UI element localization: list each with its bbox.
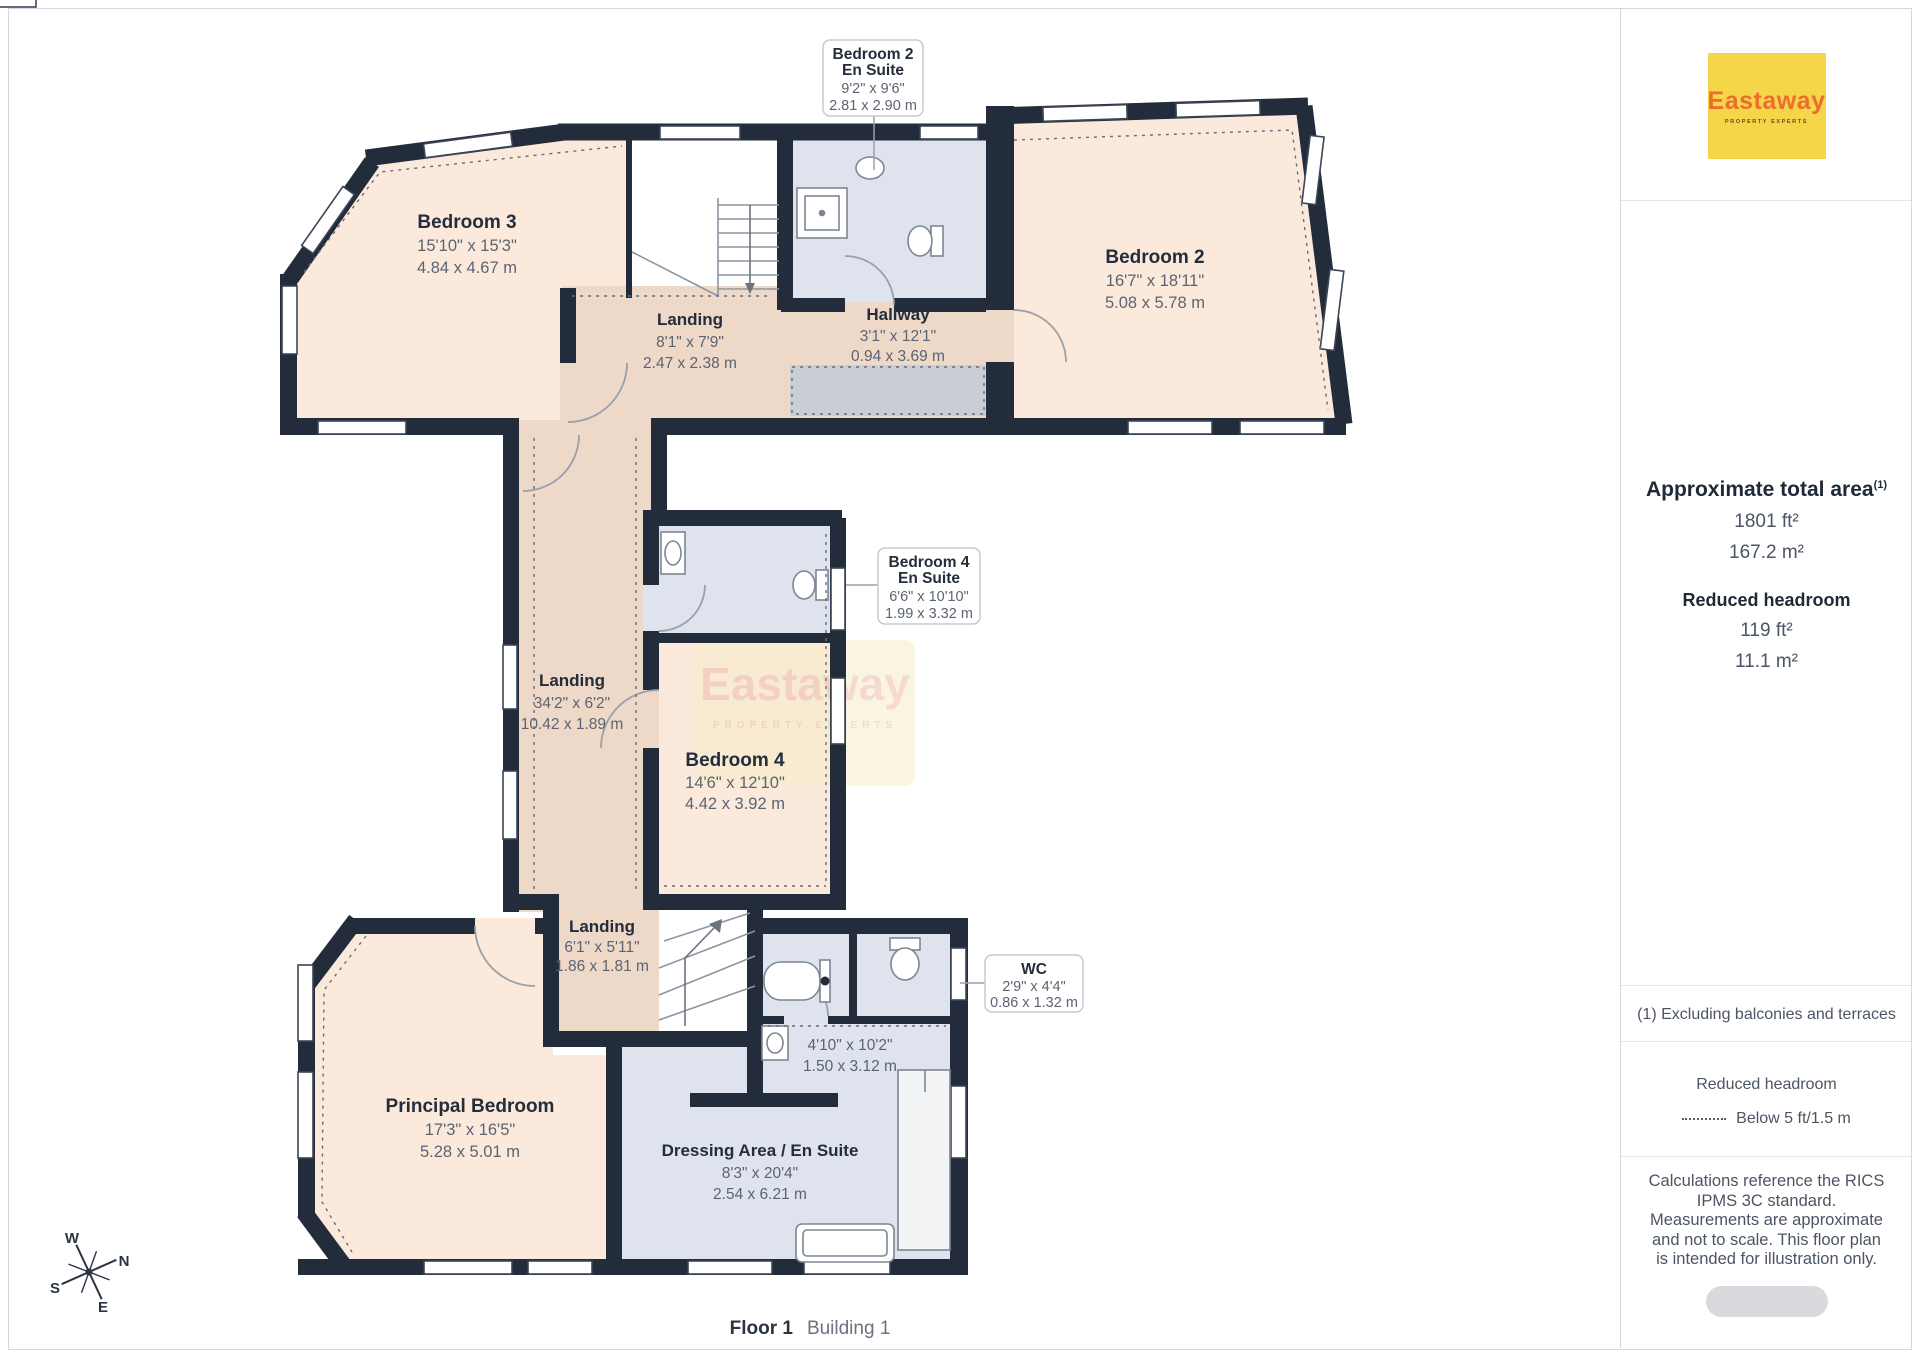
floor-label: Floor 1 <box>730 1318 793 1339</box>
svg-text:E: E <box>98 1299 108 1316</box>
agency-tagline: PROPERTY EXPERTS <box>1725 119 1808 125</box>
svg-text:3'1" x 12'1": 3'1" x 12'1" <box>860 328 936 345</box>
total-area-title: Approximate total area(1) <box>1621 478 1912 502</box>
callout-wc: WC 2'9" x 4'4" 0.86 x 1.32 m <box>960 955 1083 1012</box>
room-label-bedroom-4: Bedroom 4 14'6" x 12'10" 4.42 x 3.92 m <box>685 750 785 813</box>
svg-text:Principal Bedroom: Principal Bedroom <box>386 1096 555 1117</box>
svg-text:6'1" x 5'11": 6'1" x 5'11" <box>564 939 639 956</box>
svg-text:S: S <box>50 1280 60 1297</box>
reduced-headroom-ft: 119 ft² <box>1621 620 1912 642</box>
total-area-block: Approximate total area(1) 1801 ft² 167.2… <box>1621 478 1912 673</box>
svg-text:1.86 x 1.81 m: 1.86 x 1.81 m <box>555 958 649 975</box>
svg-text:2.54 x 6.21 m: 2.54 x 6.21 m <box>713 1186 807 1203</box>
floorplan-page: Eastaway PROPERTY EXPERTS <box>0 0 1920 1358</box>
legend-row: Below 5 ft/1.5 m <box>1621 1110 1912 1128</box>
divider <box>1621 200 1912 201</box>
disclaimer-text: Calculations reference the RICS IPMS 3C … <box>1647 1172 1886 1270</box>
svg-text:8'3" x 20'4": 8'3" x 20'4" <box>722 1165 798 1182</box>
room-label-bedroom-2: Bedroom 2 16'7" x 18'11" 5.08 x 5.78 m <box>1105 247 1205 312</box>
room-label-bedroom-3: Bedroom 3 15'10" x 15'3" 4.84 x 4.67 m <box>417 212 517 277</box>
reduced-headroom-m: 11.1 m² <box>1621 651 1912 673</box>
building-label: Building 1 <box>807 1318 890 1339</box>
svg-text:0.86 x 1.32 m: 0.86 x 1.32 m <box>990 995 1078 1011</box>
svg-text:1.50 x 3.12 m: 1.50 x 3.12 m <box>803 1058 897 1075</box>
svg-text:4.42 x 3.92 m: 4.42 x 3.92 m <box>685 795 785 813</box>
svg-text:1.99 x 3.32 m: 1.99 x 3.32 m <box>885 606 973 622</box>
svg-text:WC: WC <box>1021 961 1047 978</box>
agency-brand: Eastaway <box>1708 87 1826 116</box>
svg-text:15'10" x 15'3": 15'10" x 15'3" <box>417 237 517 255</box>
divider <box>1621 1156 1912 1157</box>
svg-text:10.42 x 1.89 m: 10.42 x 1.89 m <box>521 716 624 733</box>
callout-bedroom4-ensuite: Bedroom 4 En Suite 6'6" x 10'10" 1.99 x … <box>846 548 980 624</box>
divider <box>1621 985 1912 986</box>
svg-text:16'7" x 18'11": 16'7" x 18'11" <box>1106 272 1205 290</box>
svg-text:2.81 x 2.90 m: 2.81 x 2.90 m <box>829 98 917 114</box>
compass-icon: W N S E <box>50 1230 129 1316</box>
svg-text:Bedroom 4: Bedroom 4 <box>685 750 785 771</box>
total-area-m: 167.2 m² <box>1621 542 1912 564</box>
svg-text:Landing: Landing <box>539 671 605 690</box>
bath-icon <box>764 962 820 1000</box>
total-area-ft: 1801 ft² <box>1621 511 1912 533</box>
svg-text:Landing: Landing <box>657 310 723 329</box>
footnote-marker: (1) <box>1874 479 1887 491</box>
svg-text:Hallway: Hallway <box>866 305 930 324</box>
svg-text:Landing: Landing <box>569 917 635 936</box>
floor-caption: Floor 1Building 1 <box>0 1318 1620 1340</box>
svg-text:8'1" x 7'9": 8'1" x 7'9" <box>656 334 724 351</box>
svg-text:Dressing Area / En Suite: Dressing Area / En Suite <box>662 1141 859 1160</box>
watermark-brand: Eastaway <box>700 658 910 710</box>
svg-text:Bedroom 3: Bedroom 3 <box>417 212 516 233</box>
svg-text:N: N <box>119 1253 130 1270</box>
svg-text:6'6" x 10'10": 6'6" x 10'10" <box>889 589 969 605</box>
blurred-badge <box>1706 1286 1828 1317</box>
svg-text:5.28 x 5.01 m: 5.28 x 5.01 m <box>420 1143 520 1161</box>
svg-text:Bedroom 2: Bedroom 2 <box>833 46 914 63</box>
info-sidebar: Eastaway PROPERTY EXPERTS Approximate to… <box>1620 8 1912 1348</box>
legend-label: Below 5 ft/1.5 m <box>1736 1110 1851 1127</box>
legend-title: Reduced headroom <box>1621 1076 1912 1094</box>
svg-text:34'2" x 6'2": 34'2" x 6'2" <box>534 695 610 712</box>
svg-text:4.84 x 4.67 m: 4.84 x 4.67 m <box>417 259 517 277</box>
legend-block: Reduced headroom Below 5 ft/1.5 m <box>1621 1076 1912 1128</box>
agency-logo: Eastaway PROPERTY EXPERTS <box>1708 53 1826 159</box>
dotted-line-icon <box>1682 1118 1726 1120</box>
svg-text:0.94 x 3.69 m: 0.94 x 3.69 m <box>851 348 945 365</box>
svg-text:W: W <box>65 1230 80 1247</box>
svg-text:2'9" x 4'4": 2'9" x 4'4" <box>1002 979 1065 995</box>
room-label-landing-lower: Landing 6'1" x 5'11" 1.86 x 1.81 m <box>555 917 649 975</box>
svg-text:Bedroom 2: Bedroom 2 <box>1105 247 1204 268</box>
svg-text:17'3" x 16'5": 17'3" x 16'5" <box>425 1121 516 1139</box>
svg-text:En Suite: En Suite <box>842 62 904 79</box>
svg-text:4'10" x 10'2": 4'10" x 10'2" <box>807 1037 892 1054</box>
svg-text:2.47 x 2.38 m: 2.47 x 2.38 m <box>643 355 737 372</box>
svg-text:En Suite: En Suite <box>898 570 960 587</box>
svg-text:Bedroom 4: Bedroom 4 <box>889 554 970 571</box>
reduced-headroom-title: Reduced headroom <box>1621 590 1912 611</box>
svg-text:14'6" x 12'10": 14'6" x 12'10" <box>685 774 785 792</box>
svg-text:5.08 x 5.78 m: 5.08 x 5.78 m <box>1105 294 1205 312</box>
watermark-tagline: PROPERTY EXPERTS <box>713 720 897 731</box>
exclusion-note: (1) Excluding balconies and terraces <box>1621 1006 1912 1024</box>
sink-icon <box>856 157 884 179</box>
divider <box>1621 1041 1912 1042</box>
svg-text:9'2" x 9'6": 9'2" x 9'6" <box>841 81 904 97</box>
room-label-landing-upper: Landing 8'1" x 7'9" 2.47 x 2.38 m <box>643 310 737 372</box>
wardrobe-icon <box>898 1070 950 1250</box>
